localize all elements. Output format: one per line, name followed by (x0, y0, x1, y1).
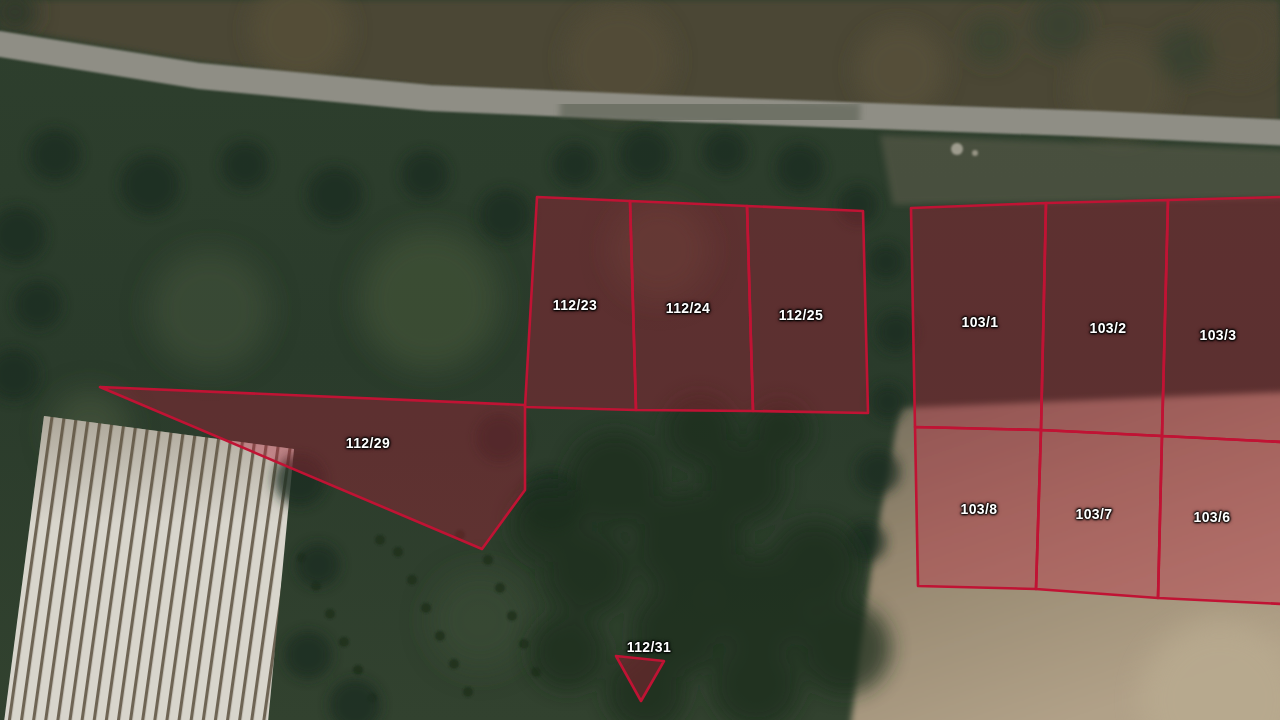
tree-blob (619, 129, 671, 181)
tree-blob (703, 130, 747, 174)
map-canvas (0, 0, 1280, 720)
orchard-tree (483, 555, 493, 565)
parcel-label-112-23: 112/23 (553, 297, 597, 313)
tree-blob (1157, 27, 1213, 83)
tree-blob (876, 312, 916, 352)
tree-blob (307, 167, 363, 223)
veg-patch (360, 230, 500, 370)
tree-blob (799, 602, 891, 694)
tree-blob (771, 521, 859, 609)
orchard-tree (353, 665, 363, 675)
satellite-parcel-map: 112/23 112/24 112/25 112/29 112/31 103/1… (0, 0, 1280, 720)
greenhouse-shading (4, 416, 294, 720)
field-patch (855, 25, 945, 115)
orchard-tree (435, 631, 445, 641)
tree-blob (868, 244, 904, 280)
parcel-label-103-1: 103/1 (961, 314, 998, 330)
parcel-label-112-29: 112/29 (346, 435, 390, 451)
tree-blob (479, 189, 531, 241)
tree-blob (120, 155, 180, 215)
tree-blob (221, 141, 269, 189)
tree-blob (776, 144, 824, 192)
tree-blob (870, 384, 906, 420)
orchard-tree (519, 639, 529, 649)
parcel-103-2 (1041, 200, 1168, 436)
tree-blob (553, 143, 597, 187)
orchard-tree (449, 659, 459, 669)
road-tree-shadow (560, 107, 860, 117)
parcel-103-3 (1162, 197, 1280, 442)
field-patch (1200, 0, 1280, 80)
orchard-tree (339, 637, 349, 647)
orchard-tree (407, 575, 417, 585)
orchard-tree (507, 611, 517, 621)
tree-blob (966, 16, 1014, 64)
orchard-tree (421, 603, 431, 613)
veg-patch (150, 250, 270, 370)
parcel-label-103-3: 103/3 (1199, 327, 1236, 343)
parcel-label-103-2: 103/2 (1089, 320, 1126, 336)
orchard-tree (375, 535, 385, 545)
parcel-label-103-7: 103/7 (1075, 506, 1112, 522)
orchard-tree (393, 547, 403, 557)
parcel-label-112-24: 112/24 (666, 300, 710, 316)
tree-blob (530, 614, 606, 690)
tree-blob (296, 543, 340, 587)
tree-blob (14, 281, 62, 329)
tree-blob (29, 129, 81, 181)
parcel-label-112-25: 112/25 (779, 307, 823, 323)
orchard-tree (325, 609, 335, 619)
tree-blob (510, 487, 586, 563)
orchard-tree (495, 583, 505, 593)
parcel-label-103-8: 103/8 (960, 501, 997, 517)
parcel-label-103-6: 103/6 (1193, 509, 1230, 525)
tree-blob (401, 151, 449, 199)
orchard-tree (463, 687, 473, 697)
tree-blob (284, 631, 332, 679)
tree-blob (856, 450, 900, 494)
parcel-label-112-31: 112/31 (627, 639, 671, 655)
